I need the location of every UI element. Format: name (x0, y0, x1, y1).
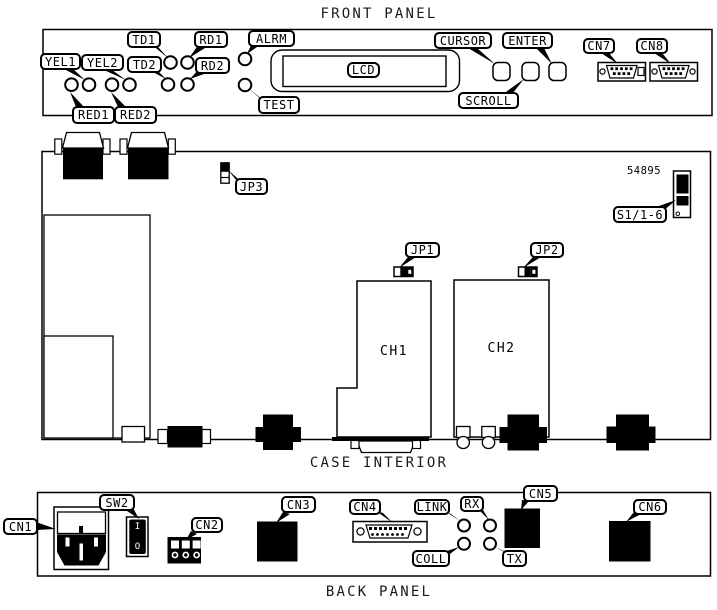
label-cn5: CN5 (523, 485, 558, 502)
label-alrm: ALRM (248, 30, 295, 47)
label-coll: COLL (412, 550, 450, 567)
case-interior-title: CASE INTERIOR (299, 455, 459, 471)
label-sw2: SW2 (99, 494, 135, 511)
label-rd1: RD1 (194, 31, 228, 48)
tx-led (484, 538, 496, 550)
test-led (239, 79, 252, 92)
label-rd2: RD2 (195, 57, 230, 74)
cn5-connector (505, 509, 541, 549)
label-red2: RED2 (114, 106, 157, 124)
jp3-jumper (221, 163, 229, 183)
transformer-outline (44, 336, 113, 438)
label-cn8: CN8 (636, 38, 668, 54)
label-yel1: YEL1 (40, 53, 81, 70)
label-link: LINK (414, 499, 450, 515)
rx-led (484, 520, 496, 532)
red1-led (65, 78, 78, 91)
label-tx: TX (502, 550, 527, 567)
label-cursor: CURSOR (434, 32, 492, 49)
label-lcd: LCD (347, 62, 380, 78)
cn7-connector (598, 63, 646, 82)
label-cn2: CN2 (191, 517, 223, 533)
panel-diagram: FRONT PANEL CASE INTERIOR BACK PANEL YEL… (0, 0, 717, 610)
label-jp2: JP2 (530, 242, 564, 258)
yel1-led (83, 78, 96, 91)
back-panel-title: BACK PANEL (299, 584, 459, 600)
label-test: TEST (258, 96, 300, 114)
board-top-connector-2 (120, 133, 175, 180)
ch1-module-label: CH1 (357, 344, 431, 359)
label-td2: TD2 (127, 56, 162, 73)
part-number: 54895 (626, 165, 662, 177)
label-cn6: CN6 (633, 499, 667, 515)
cursor-button-shape (493, 63, 510, 81)
label-cn1: CN1 (3, 518, 38, 535)
rd1-led (181, 56, 194, 69)
alrm-led (239, 53, 252, 66)
label-rx: RX (460, 496, 484, 512)
ch2-module-outline (454, 280, 549, 437)
jp2-jumper (519, 267, 538, 277)
label-jp1: JP1 (405, 242, 440, 258)
coll-led (458, 538, 470, 550)
front-panel-title: FRONT PANEL (299, 6, 459, 22)
switch-on-mark: I (131, 522, 144, 532)
board-top-connector-1 (55, 133, 110, 180)
rd2-led (181, 78, 194, 91)
bottom-edge-small-connector (122, 427, 145, 443)
label-red1: RED1 (72, 106, 115, 124)
yel2-led (123, 78, 136, 91)
cn6-connector (609, 521, 651, 562)
td1-led (164, 56, 177, 69)
label-cn3: CN3 (281, 496, 316, 513)
label-cn4: CN4 (349, 499, 381, 515)
cn4-connector (353, 522, 427, 543)
scroll-button-shape (522, 63, 539, 81)
enter-button-shape (549, 63, 566, 81)
diagram-line-art (0, 0, 717, 610)
link-led (458, 520, 470, 532)
ch2-module-label: CH2 (454, 341, 549, 356)
label-scroll: SCROLL (458, 92, 519, 109)
label-jp3: JP3 (235, 178, 268, 195)
label-yel2: YEL2 (81, 54, 124, 71)
label-s1: S1/1-6 (613, 206, 667, 223)
cn3-connector (257, 522, 298, 562)
label-enter: ENTER (502, 32, 553, 49)
cn2-connector (168, 537, 202, 564)
bottom-edge-connector-2 (158, 426, 211, 448)
switch-off-mark: O (131, 542, 144, 552)
db25-connector (351, 441, 421, 453)
cn1-power-inlet (54, 507, 109, 570)
jp1-jumper (394, 267, 413, 277)
label-cn7: CN7 (583, 38, 615, 54)
s1-dip-switch (674, 171, 691, 218)
td2-led (162, 78, 175, 91)
case-interior-drawing (42, 133, 711, 453)
cn8-connector (650, 63, 698, 82)
red2-led (106, 78, 119, 91)
label-td1: TD1 (127, 31, 161, 48)
